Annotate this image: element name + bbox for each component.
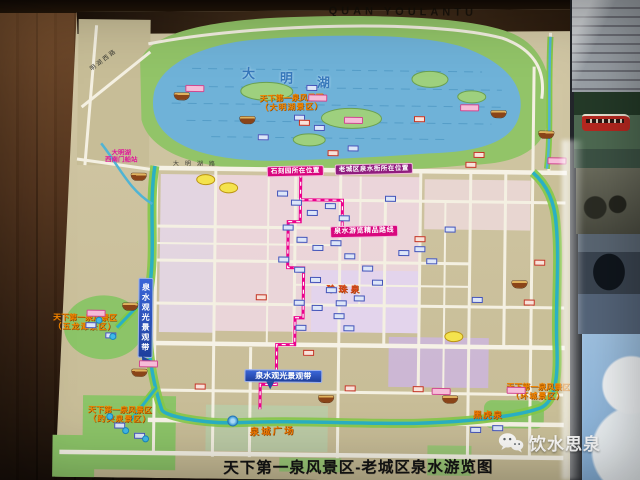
map-sheet: QUAN YOULANTU (0, 0, 640, 480)
spring-poi-chip (445, 227, 456, 233)
spring-poi-chip (472, 297, 483, 303)
poi-chip-red (328, 150, 339, 156)
poi-chip-red (524, 299, 535, 305)
spring-poi-chip (312, 245, 323, 251)
spring-poi-chip (291, 200, 302, 206)
spring-poi-chip (414, 246, 425, 252)
spring-poi-chip (339, 215, 350, 221)
spring-poi-chip (334, 313, 345, 319)
station-label-chip (87, 310, 106, 317)
spring-poi-chip (277, 190, 288, 196)
poi-chip-red (414, 116, 425, 122)
watermark: 饮水思泉 (498, 430, 601, 455)
spring-poi-chip (314, 125, 325, 131)
spring-pond (122, 427, 129, 434)
spring-poi-chip (348, 145, 359, 151)
spring-poi-chip (85, 322, 96, 328)
poi-chip-red (299, 120, 310, 126)
spring-poi-chip (336, 300, 347, 306)
boat-icon (240, 117, 255, 124)
spring-poi-chip (283, 225, 294, 231)
poi-chip-red (414, 236, 425, 242)
poi-chip-red (474, 152, 485, 158)
mini-map-inset (582, 334, 640, 480)
station-label-chip (460, 104, 479, 111)
spring-poi-chip (398, 250, 409, 256)
station-label-chip (507, 387, 526, 394)
boat-icon (491, 111, 506, 118)
spring-poi-chip (362, 266, 373, 272)
station-label-chip (185, 85, 204, 92)
red-boat-image (582, 114, 630, 131)
spring-poi-chip (278, 256, 289, 262)
spring-poi-chip (343, 325, 354, 331)
spring-poi-chip (294, 300, 305, 306)
boat-icon (443, 396, 458, 403)
spring-pond (95, 317, 102, 324)
boat-icon (512, 281, 527, 288)
glare-highlight (562, 140, 584, 480)
spring-poi-chip (310, 277, 321, 283)
boat-icon (132, 369, 147, 376)
station-label-chip (308, 94, 327, 101)
note-bubble (196, 174, 215, 185)
spring-poi-chip (372, 280, 383, 286)
boat-icon (123, 303, 138, 310)
note-bubble (444, 331, 463, 342)
station-label-chip (139, 360, 158, 367)
brochure-side-panel (570, 0, 640, 480)
spring-poi-chip (354, 295, 365, 301)
stone-bridge-photo (578, 234, 640, 334)
boat-icon (174, 93, 189, 100)
fountain-icon (227, 415, 238, 426)
watermark-text: 饮水思泉 (529, 430, 601, 455)
poi-chip-red (345, 385, 356, 391)
spring-pond (109, 333, 116, 340)
boat-icon (539, 131, 554, 138)
spring-pond (106, 413, 113, 420)
poi-chip-red (256, 294, 267, 300)
boat-icon (319, 395, 334, 402)
people-photo (576, 168, 640, 234)
photo-of-tourist-map: QUAN YOULANTU (0, 0, 640, 480)
spring-pond (142, 435, 149, 442)
spring-poi-chip (312, 305, 323, 311)
spring-poi-chip (385, 196, 396, 202)
poi-chip-red (195, 383, 206, 389)
spring-poi-chip (330, 240, 341, 246)
note-bubble (219, 182, 238, 193)
station-label-chip (432, 388, 451, 395)
spring-poi-chip (306, 85, 317, 91)
boat-icon (131, 173, 146, 180)
spring-poi-chip (326, 287, 337, 293)
spring-poi-chip (344, 253, 355, 259)
spring-poi-chip (307, 210, 318, 216)
spring-poi-chip (325, 203, 336, 209)
spring-poi-chip (296, 237, 307, 243)
spring-poi-chip (258, 134, 269, 140)
wechat-icon (498, 432, 524, 454)
station-label-chip (344, 117, 363, 124)
spring-poi-chip (470, 427, 481, 433)
map-markers-layer (0, 0, 640, 480)
poi-chip-red (303, 350, 314, 356)
panel-text-section (572, 0, 640, 92)
spring-poi-chip (295, 325, 306, 331)
poi-chip-red (465, 162, 476, 168)
spring-poi-chip (426, 258, 437, 264)
poi-chip-red (413, 386, 424, 392)
poi-chip-red (534, 260, 545, 266)
spring-poi-chip (294, 267, 305, 273)
